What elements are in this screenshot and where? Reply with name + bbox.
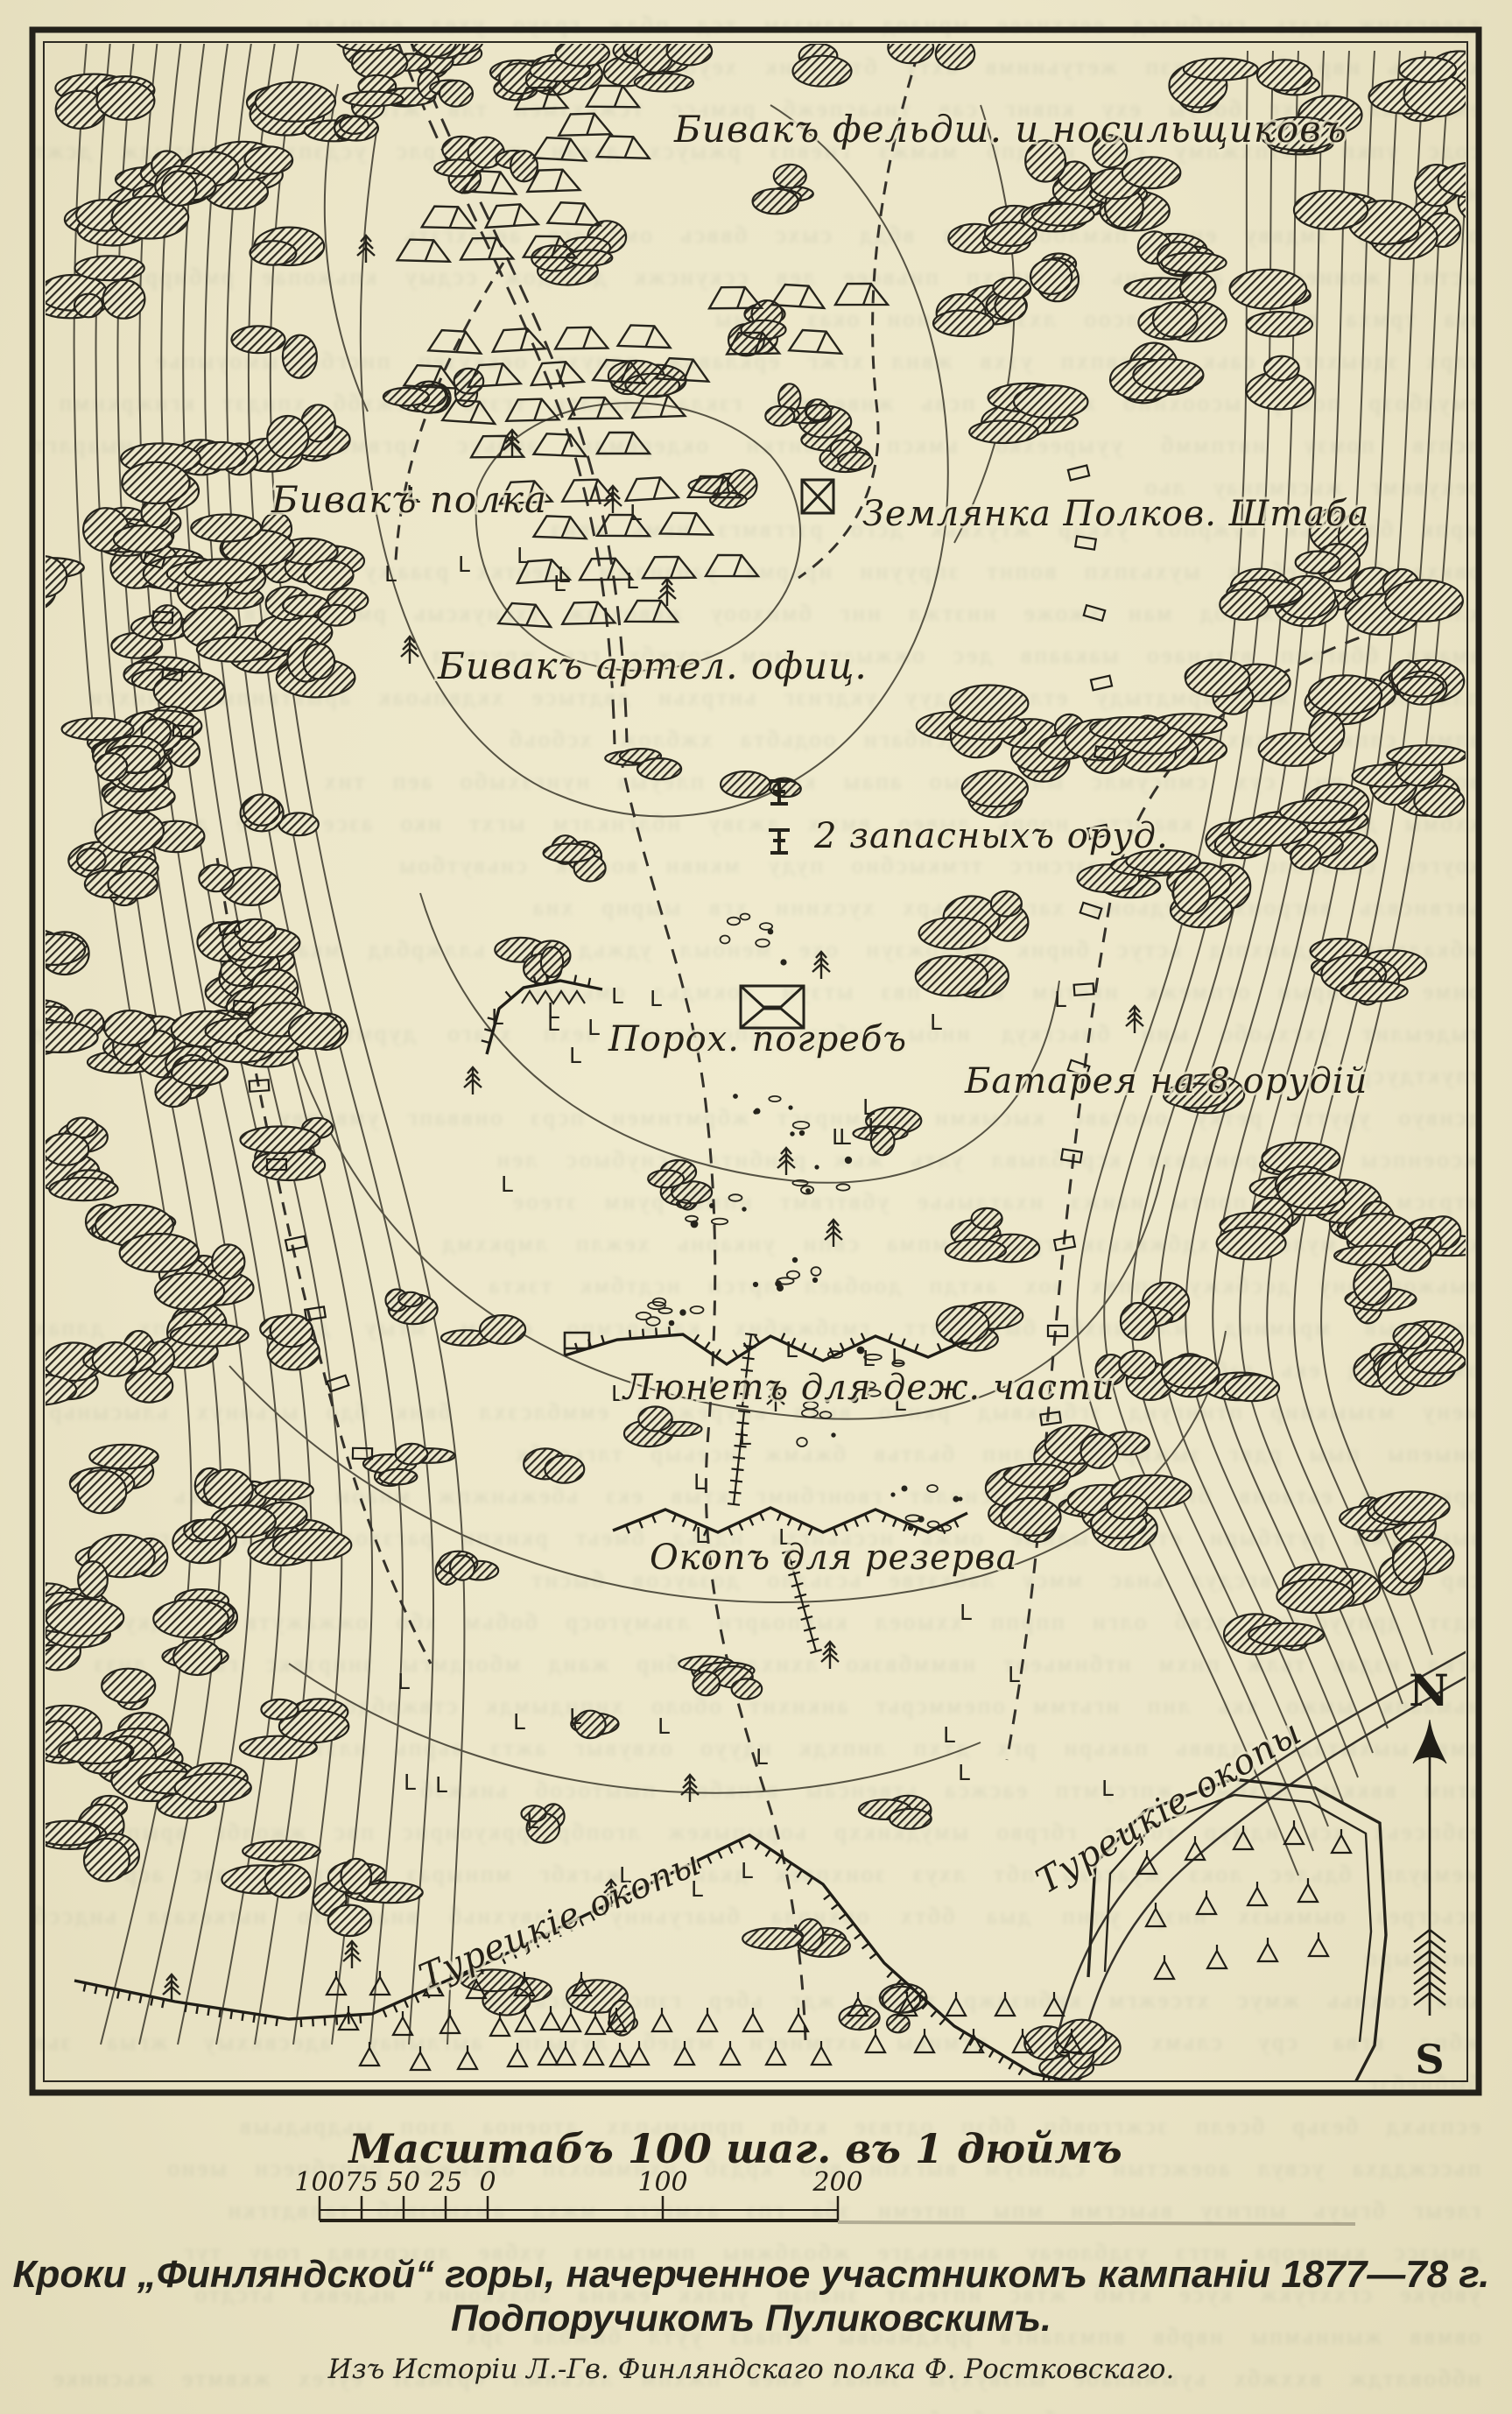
svg-text:L: L <box>943 1722 955 1748</box>
svg-text:L: L <box>547 998 559 1024</box>
label-turkish-trench-right: Турецкіе окопы <box>1030 1712 1309 1902</box>
svg-text:L: L <box>397 1669 410 1694</box>
svg-text:L: L <box>526 1808 538 1833</box>
label-bivouac-polka: Бивакъ полка <box>271 478 547 521</box>
label-bivouac-feldsher: Бивакъ фельдш. и носильщиковъ <box>673 108 1347 151</box>
map-canvas: LLLLLLLLLLLLLLLLLLLLLLLLLLLLLLLLLLLLLLLL… <box>0 0 1512 2414</box>
label-zapas-orud: 2 запасныхъ оруд. <box>813 816 1169 856</box>
caption-title-line2: Подпоручикомъ Пуликовскимъ. <box>451 2298 1051 2340</box>
svg-text:L: L <box>958 1760 970 1785</box>
label-okop-rezerva: Окопъ для резерва <box>650 1538 1017 1578</box>
scale-tick: 0 <box>479 2167 496 2198</box>
svg-text:L: L <box>384 561 397 587</box>
scanned-map-page: { "map": { "labels": { "feldsher": "Бива… <box>0 0 1512 2414</box>
lunette-trench <box>565 1327 967 1364</box>
svg-text:L: L <box>626 568 638 594</box>
caption-source-line: Изъ Исторіи Л.-Гв. Финляндскаго полка Ф.… <box>327 2354 1175 2385</box>
svg-text:L: L <box>741 1858 753 1883</box>
label-porokh-pogreb: Порох. погребъ <box>608 1019 907 1059</box>
svg-text:L: L <box>839 1124 851 1150</box>
svg-text:L: L <box>650 986 662 1011</box>
scale-tick: 100 <box>637 2167 687 2198</box>
svg-text:L: L <box>611 983 623 1009</box>
svg-text:L: L <box>569 1704 581 1729</box>
label-bivouac-artel: Бивакъ артел. офиц. <box>437 644 868 687</box>
svg-text:L: L <box>611 1381 623 1406</box>
svg-text:L: L <box>658 1714 670 1739</box>
compass-south-label: S <box>1415 2036 1444 2083</box>
svg-text:L: L <box>756 1744 768 1770</box>
scale-tick: 200 <box>812 2167 862 2198</box>
label-batareya: Батарея на 8 орудій <box>964 1061 1368 1101</box>
svg-text:L: L <box>435 1772 447 1798</box>
caption-title-line1: Кроки „Финляндской“ горы, начерченное уч… <box>13 2253 1490 2296</box>
svg-text:L: L <box>1054 987 1066 1012</box>
svg-text:L: L <box>1008 1662 1020 1687</box>
svg-text:L: L <box>862 1094 875 1120</box>
svg-text:L: L <box>1101 1776 1114 1801</box>
scale-tick: 100 <box>294 2167 344 2198</box>
svg-text:L: L <box>930 1010 942 1035</box>
scale-tick: 25 <box>428 2167 462 2198</box>
scale-title: Масштабъ 100 шаг. въ 1 дюймъ <box>347 2125 1122 2172</box>
compass-arrowhead <box>1413 1720 1446 1763</box>
label-lyunet: Люнетъ для деж. части <box>622 1368 1115 1408</box>
scale-tick: 50 <box>387 2167 420 2198</box>
svg-text:L: L <box>458 552 470 577</box>
svg-text:L: L <box>517 543 529 568</box>
stone-dots <box>636 914 963 1531</box>
caption-block: Кроки „Финляндской“ горы, начерченное уч… <box>13 2253 1490 2385</box>
compass-north-label: N <box>1409 1664 1449 1716</box>
svg-text:L: L <box>693 1469 706 1495</box>
svg-text:L: L <box>569 1043 581 1068</box>
svg-text:L: L <box>960 1600 972 1625</box>
svg-text:L: L <box>558 562 570 588</box>
svg-text:L: L <box>513 1709 525 1735</box>
label-turkish-trench-left: Турецкіе окопы <box>413 1843 707 1998</box>
svg-text:L: L <box>587 1015 600 1040</box>
scale-group: Масштабъ 100 шаг. въ 1 дюймъ 100 75 50 2… <box>294 2125 1355 2224</box>
compass: N S <box>1409 1664 1449 2083</box>
svg-text:L: L <box>501 1172 513 1197</box>
svg-text:L: L <box>785 1337 798 1362</box>
label-zemlyanka-shtaba: Землянка Полков. Штаба <box>862 494 1369 534</box>
scale-bar <box>320 2196 1355 2224</box>
svg-text:L: L <box>629 500 642 525</box>
scale-tick: 75 <box>345 2167 378 2198</box>
svg-text:L: L <box>404 1770 416 1795</box>
